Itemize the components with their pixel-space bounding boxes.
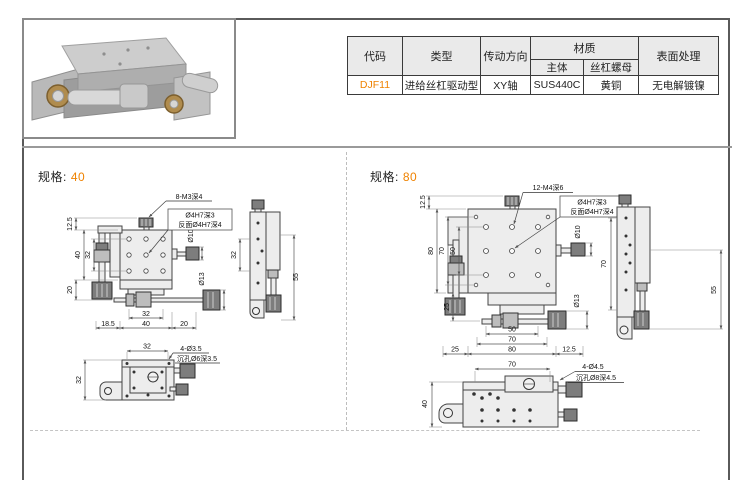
- dim-label: 50: [508, 327, 516, 334]
- dim-label: 70: [601, 260, 608, 268]
- dim-label: 25: [444, 303, 451, 311]
- dim-label: 12.5: [67, 217, 74, 231]
- spec80-drawing: 12.5 80 70 50 25 50 70 25 80 12.5 Ø10 Ø1…: [382, 180, 732, 470]
- dim-label: 70: [508, 362, 516, 369]
- col-header-surface: 表面处理: [639, 37, 719, 76]
- callout-cbore-label: 沉孔Ø8深4.5: [576, 373, 616, 382]
- cell-surface: 无电解镀镍: [639, 76, 719, 95]
- dim-label: 40: [142, 321, 150, 328]
- dim-label: 40: [422, 400, 429, 408]
- table-row: DJF11 进给丝杠驱动型 XY轴 SUS440C 黄铜 无电解镀镍: [348, 76, 719, 95]
- dim-label: 55: [711, 286, 718, 294]
- col-header-material-nut: 丝杠螺母: [584, 60, 639, 76]
- cell-material-nut: 黄铜: [584, 76, 639, 95]
- dim-label: 20: [67, 286, 74, 294]
- dim-label: 32: [85, 251, 92, 259]
- dim-label: 25: [451, 347, 459, 354]
- callout-cbore-count-label: 4-Ø4.5: [582, 364, 604, 371]
- spec40-front-view: [92, 218, 220, 310]
- dim-label: 18.5: [101, 321, 115, 328]
- callout-pin-back-label: 反面Ø4H7深4: [178, 220, 221, 229]
- dim-label: 80: [428, 247, 435, 255]
- dim-label: 32: [142, 311, 150, 318]
- callout-pin-label: Ø4H7深3: [577, 198, 606, 207]
- product-photo: [22, 18, 236, 139]
- cell-direction: XY轴: [481, 76, 531, 95]
- callout-cbore-label: 沉孔Ø6深3.5: [177, 354, 217, 363]
- spec40-side-view: 32 55: [231, 200, 300, 320]
- dim-label: Ø13: [199, 272, 206, 285]
- callout-pin-back-label: 反面Ø4H7深4: [570, 207, 613, 216]
- cell-code: DJF11: [348, 76, 403, 95]
- spec40-bottom-view: 32 32 4-Ø3.5 沉孔Ø6深3.5: [76, 344, 220, 401]
- dim-label: 70: [439, 247, 446, 255]
- spec-column-divider: [346, 152, 347, 430]
- dim-label: 70: [508, 337, 516, 344]
- col-header-code: 代码: [348, 37, 403, 76]
- section-divider: [22, 146, 732, 148]
- callout-holes-label: 12-M4深6: [533, 183, 564, 192]
- col-header-material-body: 主体: [531, 60, 584, 76]
- col-header-type: 类型: [403, 37, 481, 76]
- spec40-size: 40: [71, 170, 85, 184]
- dim-label: Ø10: [575, 225, 582, 238]
- dim-label: 32: [143, 344, 151, 351]
- spec40-label: 规格:: [38, 170, 67, 184]
- spec-table: 代码 类型 传动方向 材质 表面处理 主体 丝杠螺母 DJF11 进给丝杠驱动型…: [347, 36, 719, 95]
- dim-label: 20: [180, 321, 188, 328]
- dim-label: 55: [293, 273, 300, 281]
- cell-type: 进给丝杠驱动型: [403, 76, 481, 95]
- dim-label: Ø10: [188, 229, 195, 242]
- dim-label: 50: [450, 247, 457, 255]
- product-photo-illustration: [24, 20, 234, 137]
- callout-pin-label: Ø4H7深3: [185, 211, 214, 220]
- col-header-material: 材质: [531, 37, 639, 60]
- spec80-bottom-view: 70 40 4-Ø4.5 沉孔Ø8深4.5: [422, 362, 624, 428]
- callout-cbore-count-label: 4-Ø3.5: [180, 346, 202, 353]
- callout-holes-label: 8-M3深4: [176, 192, 203, 201]
- spec80-side-view: 70 55: [601, 195, 723, 339]
- dim-label: 32: [76, 376, 83, 384]
- dim-label: 12.5: [420, 195, 427, 209]
- col-header-direction: 传动方向: [481, 37, 531, 76]
- dim-label: 12.5: [562, 347, 576, 354]
- dim-label: Ø13: [574, 294, 581, 307]
- dim-label: 80: [508, 347, 516, 354]
- dim-label: 40: [75, 251, 82, 259]
- cell-material-body: SUS440C: [531, 76, 584, 95]
- dim-label: 32: [231, 251, 238, 259]
- spec40-section-label: 规格:40: [38, 168, 85, 185]
- spec40-drawing: 12.5 40 32 20 32 18.5 40 20 Ø10 Ø13 8-M3…: [30, 185, 330, 435]
